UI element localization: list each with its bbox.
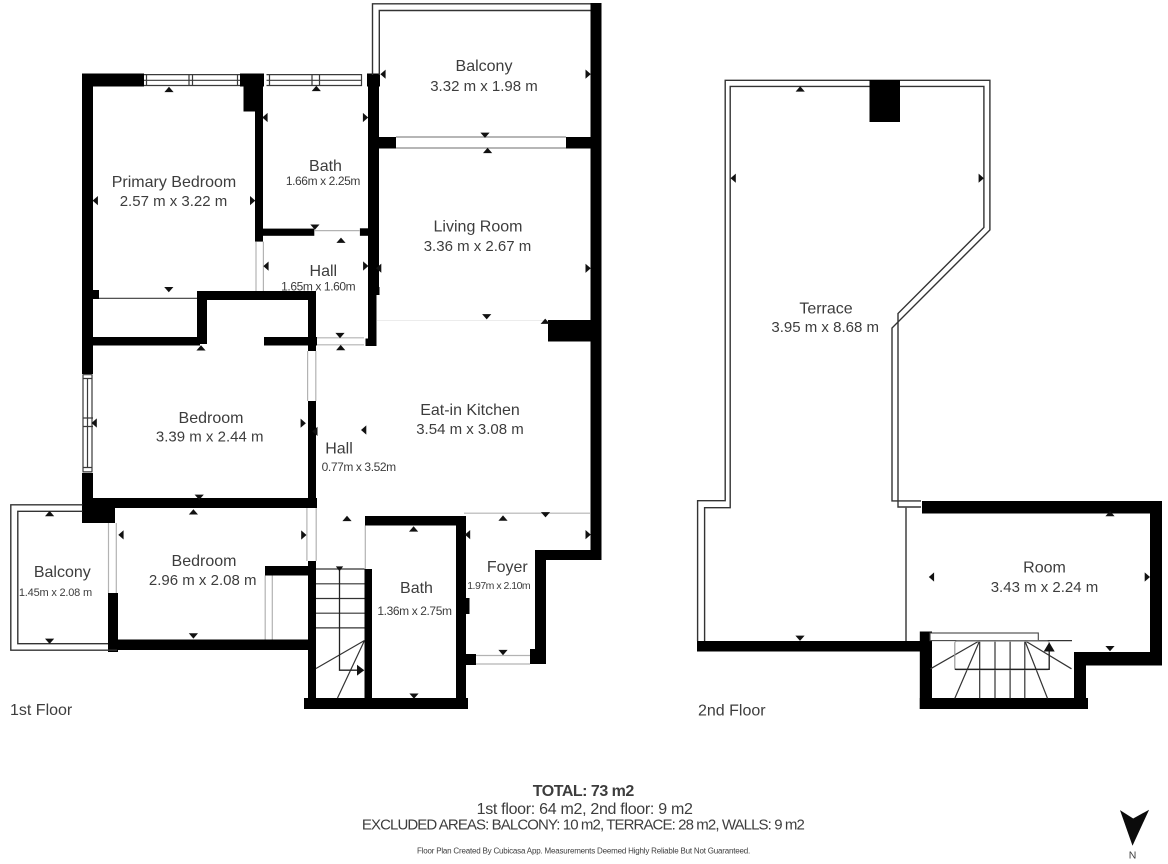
svg-text:1st Floor: 1st Floor [10, 702, 73, 719]
svg-text:1.36m x 2.75m: 1.36m x 2.75m [377, 604, 452, 618]
svg-text:3.36 m x 2.67 m: 3.36 m x 2.67 m [424, 238, 532, 255]
svg-text:Living Room: Living Room [434, 219, 523, 236]
svg-text:2.96 m x 2.08 m: 2.96 m x 2.08 m [149, 572, 257, 589]
svg-text:1.45m x 2.08 m: 1.45m x 2.08 m [19, 587, 92, 599]
svg-text:Eat-in Kitchen: Eat-in Kitchen [420, 402, 520, 419]
svg-text:Primary Bedroom: Primary Bedroom [112, 174, 236, 191]
svg-text:2nd Floor: 2nd Floor [698, 703, 766, 720]
svg-text:3.54 m x 3.08 m: 3.54 m x 3.08 m [416, 421, 524, 438]
svg-text:1.97m x 2.10m: 1.97m x 2.10m [467, 580, 531, 592]
svg-text:1.65m x 1.60m: 1.65m x 1.60m [281, 280, 356, 294]
svg-text:3.95 m x 8.68 m: 3.95 m x 8.68 m [771, 319, 879, 336]
svg-text:3.39 m x 2.44 m: 3.39 m x 2.44 m [156, 429, 264, 446]
svg-text:N: N [1129, 850, 1137, 862]
svg-text:EXCLUDED AREAS: BALCONY: 10 m2: EXCLUDED AREAS: BALCONY: 10 m2, TERRACE:… [362, 817, 805, 834]
svg-text:Hall: Hall [310, 263, 338, 280]
svg-text:Bath: Bath [400, 580, 433, 597]
svg-text:1.66m x 2.25m: 1.66m x 2.25m [286, 174, 361, 188]
svg-text:Bedroom: Bedroom [172, 553, 237, 570]
svg-text:Bath: Bath [309, 158, 342, 175]
svg-text:0.77m x 3.52m: 0.77m x 3.52m [322, 460, 397, 474]
svg-text:2.57 m x 3.22 m: 2.57 m x 3.22 m [120, 193, 228, 210]
svg-text:TOTAL: 73 m2: TOTAL: 73 m2 [533, 783, 635, 800]
svg-text:Foyer: Foyer [487, 559, 529, 576]
svg-text:Bedroom: Bedroom [179, 410, 244, 427]
svg-text:1st floor: 64 m2, 2nd floor: 9: 1st floor: 64 m2, 2nd floor: 9 m2 [477, 801, 693, 818]
svg-text:3.32 m x 1.98 m: 3.32 m x 1.98 m [430, 78, 538, 95]
svg-text:3.43 m x 2.24 m: 3.43 m x 2.24 m [991, 579, 1099, 596]
svg-text:Room: Room [1023, 560, 1066, 577]
svg-text:Balcony: Balcony [456, 58, 513, 75]
svg-text:Balcony: Balcony [34, 564, 91, 581]
svg-text:Floor Plan Created By Cubicasa: Floor Plan Created By Cubicasa App. Meas… [417, 847, 750, 856]
svg-text:Terrace: Terrace [799, 301, 852, 318]
svg-text:Hall: Hall [325, 441, 353, 458]
